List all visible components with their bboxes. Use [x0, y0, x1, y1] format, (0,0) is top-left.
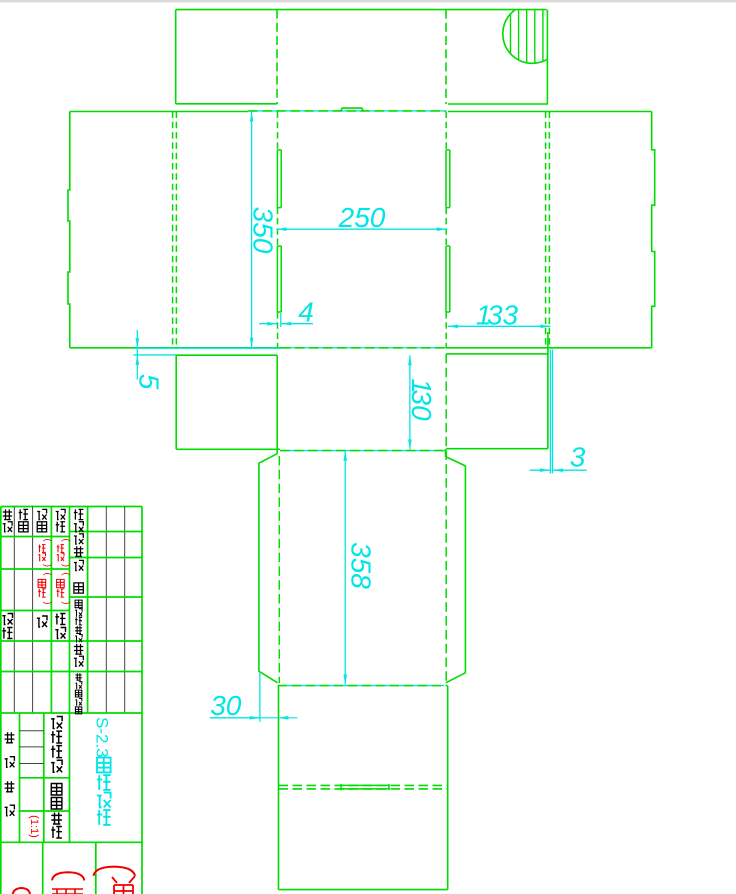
svg-text:250: 250 [338, 202, 386, 233]
svg-text:358: 358 [346, 542, 377, 589]
svg-text:S-2.3: S-2.3 [93, 717, 112, 758]
svg-text:(: ( [61, 539, 71, 542]
svg-text:(1:1): (1:1) [28, 815, 40, 838]
svg-text:(: ( [61, 573, 71, 576]
svg-text:(: ( [43, 539, 53, 542]
svg-text:): ) [43, 564, 53, 567]
svg-text:3: 3 [570, 442, 586, 473]
svg-text:30: 30 [210, 690, 242, 721]
svg-text:133: 133 [476, 300, 519, 331]
svg-text:): ) [61, 564, 71, 567]
svg-text:(: ( [43, 573, 53, 576]
svg-text:): ) [43, 602, 53, 605]
svg-text:350: 350 [248, 207, 279, 254]
svg-text:5: 5 [134, 374, 165, 390]
svg-text:4: 4 [298, 297, 314, 328]
svg-text:): ) [61, 602, 71, 605]
svg-text:130: 130 [406, 378, 437, 421]
